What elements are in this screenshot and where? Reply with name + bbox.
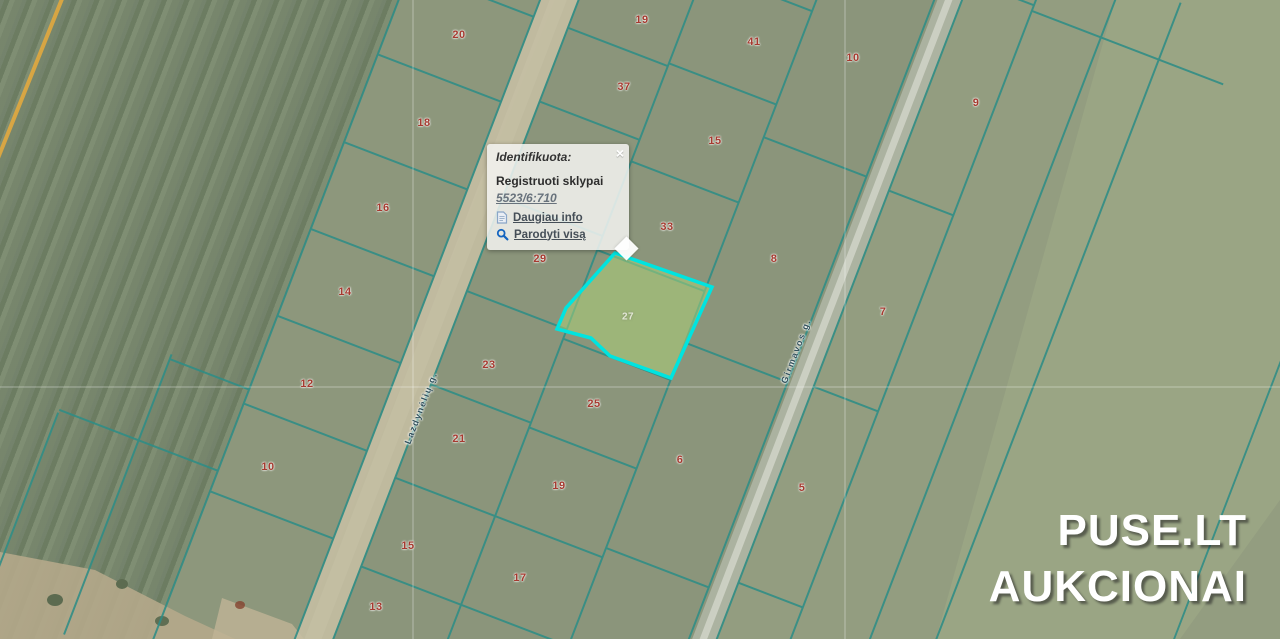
watermark-line2: AUKCIONAI xyxy=(989,559,1247,615)
popup-title: Identifikuota: xyxy=(496,150,622,164)
parodyti-visa-label: Parodyti visą xyxy=(514,229,586,241)
watermark-line1: PUSE.LT xyxy=(989,503,1247,559)
parcel-code-link[interactable]: 5523/6:710 xyxy=(496,191,557,205)
map-viewport[interactable]: 1920411037918151633298147272312252161019… xyxy=(0,0,1280,639)
watermark: PUSE.LT AUKCIONAI xyxy=(989,503,1247,615)
identify-popup: Identifikuota: × Registruoti sklypai 552… xyxy=(487,144,629,250)
daugiau-info-label: Daugiau info xyxy=(513,212,583,224)
close-icon[interactable]: × xyxy=(616,146,624,160)
magnifier-icon xyxy=(496,228,509,241)
yellow-track-line xyxy=(0,0,64,188)
daugiau-info-link[interactable]: Daugiau info xyxy=(496,211,622,224)
parodyti-visa-link[interactable]: Parodyti visą xyxy=(496,228,622,241)
document-info-icon xyxy=(496,211,508,224)
popup-section-title: Registruoti sklypai xyxy=(496,174,622,188)
